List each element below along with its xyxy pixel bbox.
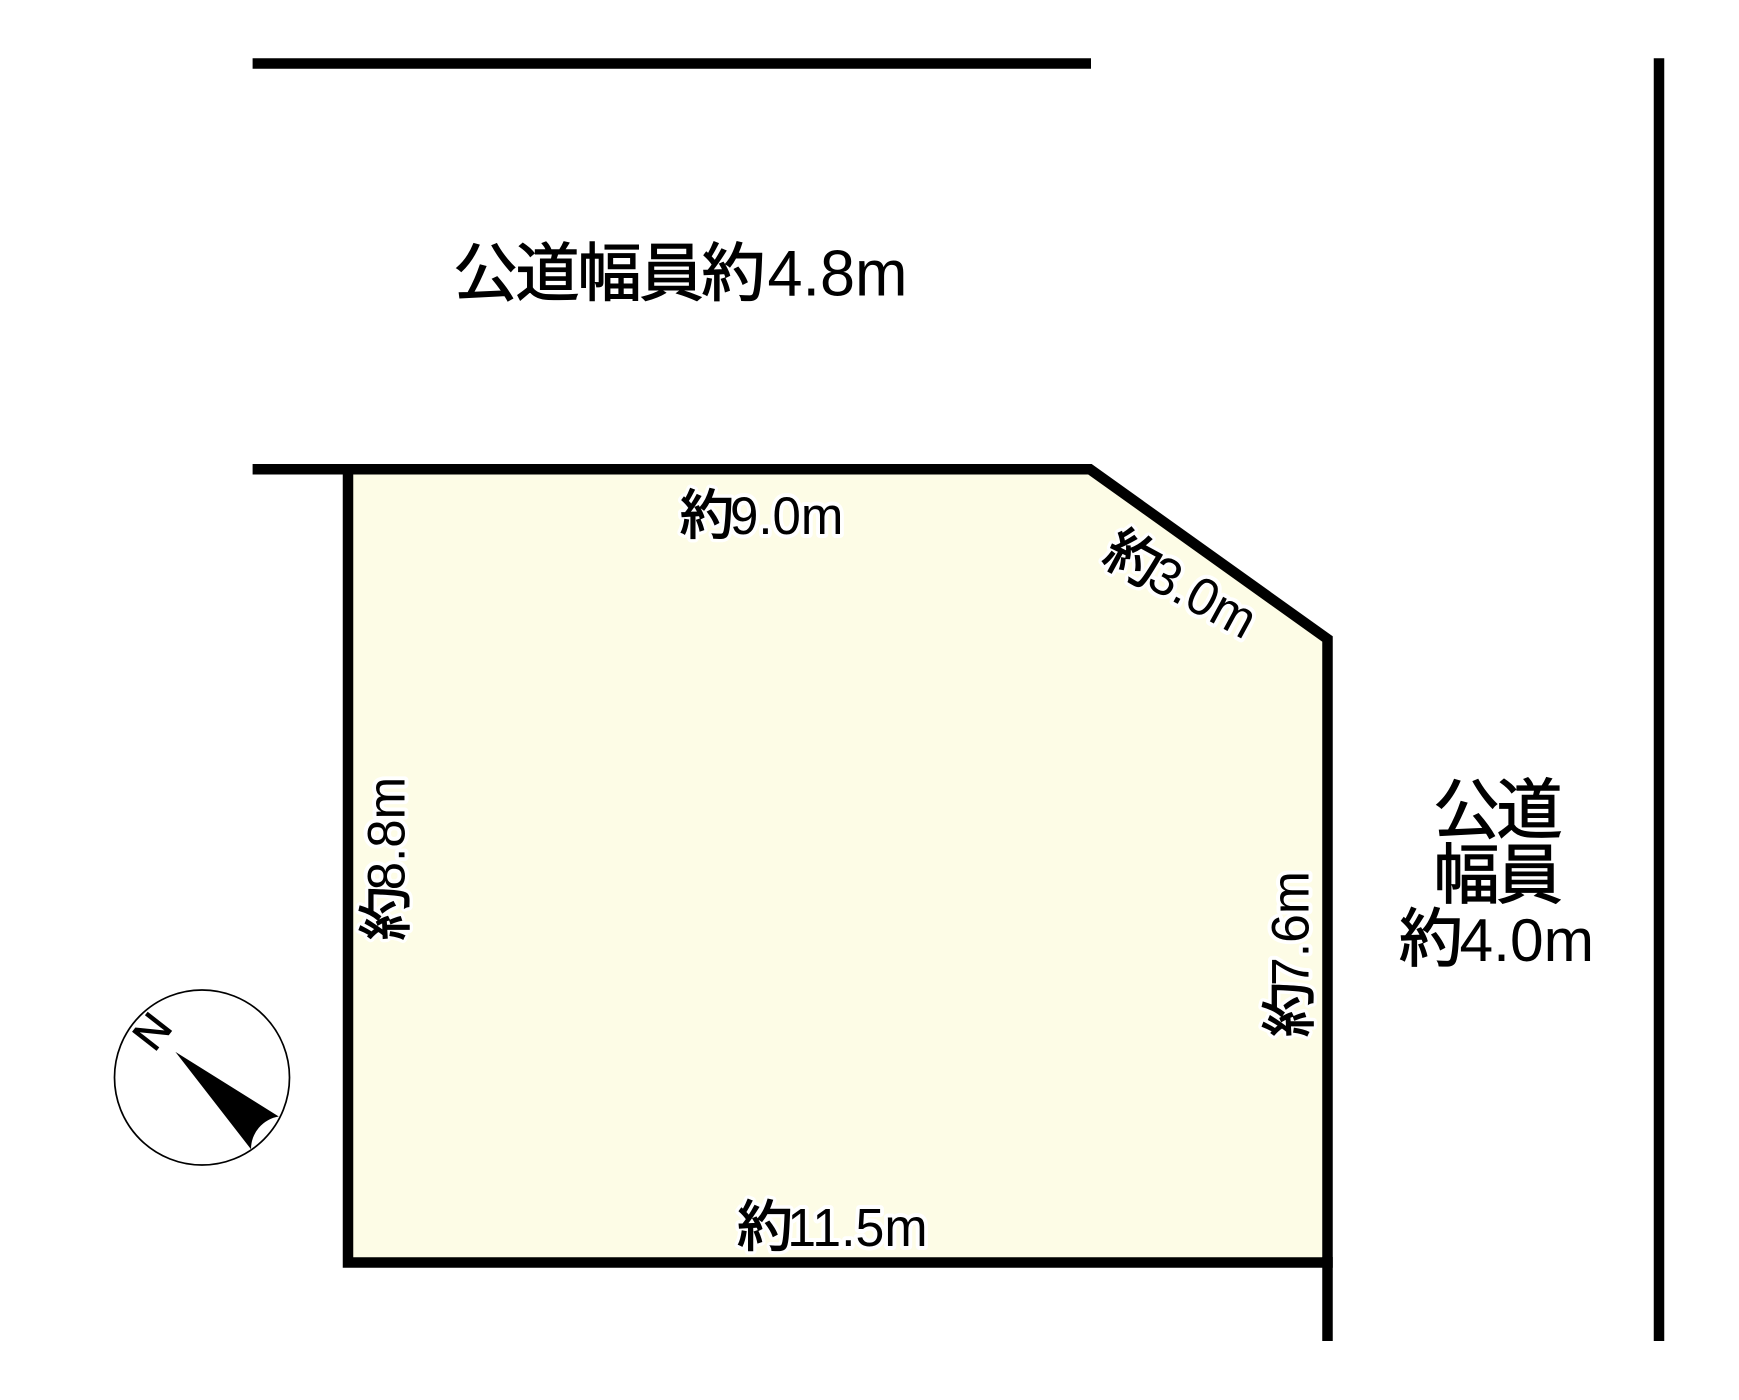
svg-text:4.8m: 4.8m xyxy=(768,237,908,310)
svg-text:11.5m: 11.5m xyxy=(787,1198,927,1258)
svg-text:7.6m: 7.6m xyxy=(1262,871,1321,986)
svg-text:9.0m: 9.0m xyxy=(730,487,843,546)
svg-text:8.8m: 8.8m xyxy=(358,777,417,890)
svg-text:4.0m: 4.0m xyxy=(1460,906,1595,974)
